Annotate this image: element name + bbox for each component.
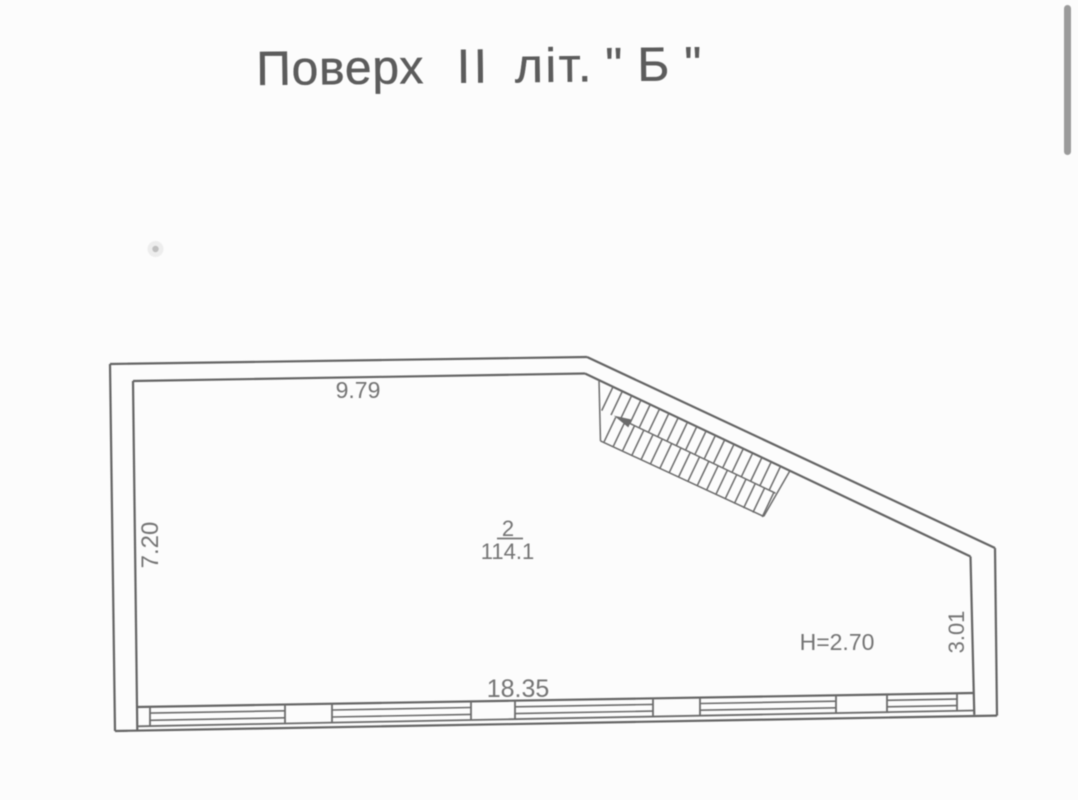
- svg-text:3.01: 3.01: [944, 611, 969, 654]
- svg-text:Поверх: Поверх: [256, 41, 424, 96]
- svg-text:114.1: 114.1: [481, 539, 534, 564]
- svg-text:": ": [605, 39, 623, 92]
- svg-text:9.79: 9.79: [336, 377, 381, 403]
- svg-text:літ.: літ.: [515, 39, 595, 93]
- svg-text:H=2.70: H=2.70: [800, 629, 875, 655]
- svg-text:": ": [684, 38, 702, 91]
- svg-text:7.20: 7.20: [137, 522, 164, 569]
- svg-text:II: II: [457, 40, 491, 93]
- svg-text:18.35: 18.35: [487, 675, 550, 703]
- svg-text:2: 2: [502, 516, 514, 541]
- svg-text:Б: Б: [637, 39, 670, 92]
